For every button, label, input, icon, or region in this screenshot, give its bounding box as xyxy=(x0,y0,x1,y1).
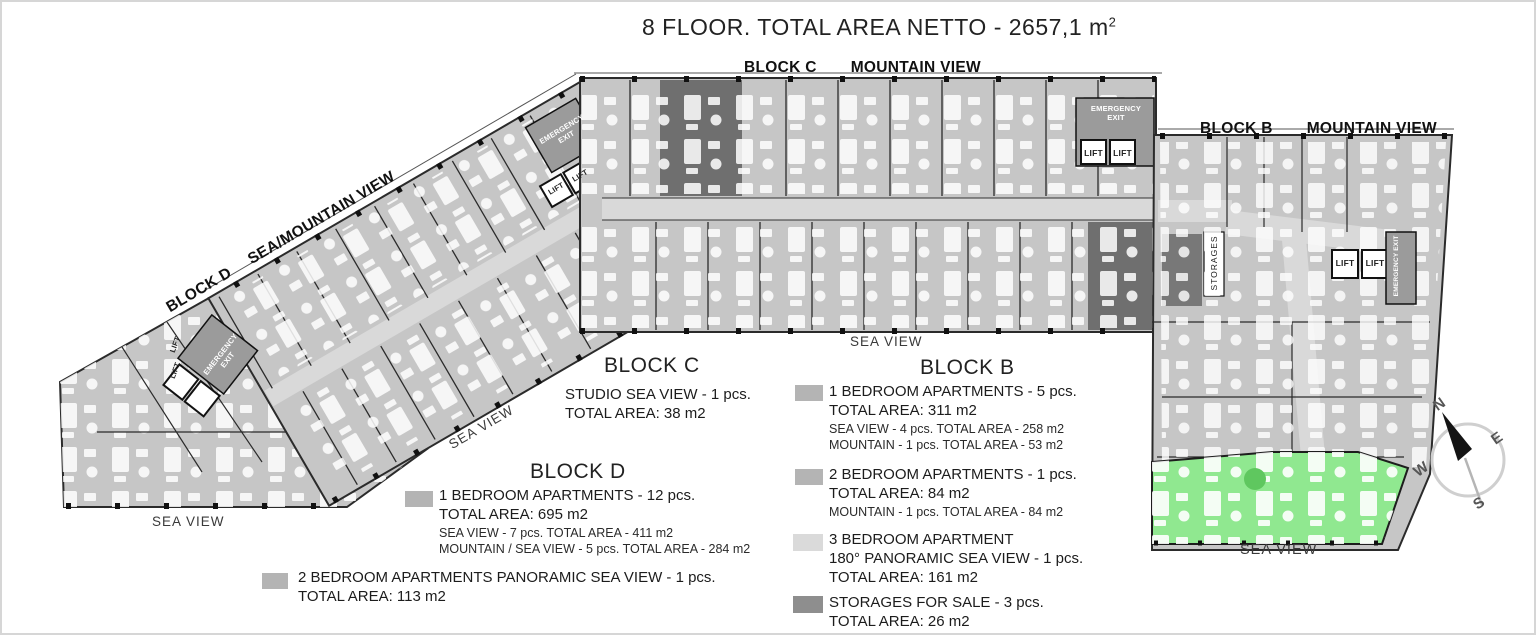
legend-line: 1 BEDROOM APARTMENTS - 12 pcs. xyxy=(439,487,750,506)
block-c-header-label: BLOCK C xyxy=(744,59,817,76)
legend-swatch-storages xyxy=(793,596,823,613)
block-c-shape xyxy=(574,73,1162,332)
block-c-header-view: MOUNTAIN VIEW xyxy=(851,59,981,76)
legend-line: 180° PANORAMIC SEA VIEW - 1 pcs. xyxy=(829,550,1083,569)
legend-subline: SEA VIEW - 7 pcs. TOTAL AREA - 411 m2 xyxy=(439,525,750,541)
legend-subline: SEA VIEW - 4 pcs. TOTAL AREA - 258 m2 xyxy=(829,421,1077,437)
lift-label-block-c-1: LIFT xyxy=(1081,148,1106,158)
block-b-shape xyxy=(1152,129,1454,550)
sea-view-label-block-b: SEA VIEW xyxy=(1240,542,1317,558)
legend-swatch-1bedroom-b xyxy=(795,385,823,401)
legend-line: TOTAL AREA: 161 m2 xyxy=(829,569,1083,588)
legend-block-b-title: BLOCK B xyxy=(920,356,1015,380)
block-b-header: BLOCK BMOUNTAIN VIEW xyxy=(1200,120,1437,138)
sea-view-label-block-c: SEA VIEW xyxy=(850,334,923,349)
legend-block-b-item-1bedroom: 1 BEDROOM APARTMENTS - 5 pcs. TOTAL AREA… xyxy=(829,383,1077,453)
legend-line: 2 BEDROOM APARTMENTS - 1 pcs. xyxy=(829,466,1077,485)
legend-subline: MOUNTAIN - 1 pcs. TOTAL AREA - 84 m2 xyxy=(829,504,1077,520)
legend-block-b-item-2bedroom: 2 BEDROOM APARTMENTS - 1 pcs. TOTAL AREA… xyxy=(829,466,1077,520)
block-b-header-view: MOUNTAIN VIEW xyxy=(1307,120,1437,137)
emergency-exit-label-block-c: EMERGENCY EXIT xyxy=(1085,104,1147,122)
block-c-header: BLOCK CMOUNTAIN VIEW xyxy=(744,59,981,77)
legend-swatch-2bedroom-panoramic xyxy=(262,573,288,589)
legend-line: TOTAL AREA: 84 m2 xyxy=(829,485,1077,504)
legend-swatch-1bedroom-d xyxy=(405,491,433,507)
legend-line: TOTAL AREA: 26 m2 xyxy=(829,613,1044,632)
sea-view-label-block-d-bottom: SEA VIEW xyxy=(152,514,225,529)
legend-subline: MOUNTAIN / SEA VIEW - 5 pcs. TOTAL AREA … xyxy=(439,541,750,557)
page-title: 8 FLOOR. TOTAL AREA NETTO - 2657,1 m2 xyxy=(642,14,1116,41)
floorplan-page: 8 FLOOR. TOTAL AREA NETTO - 2657,1 m2 BL… xyxy=(0,0,1536,635)
legend-line: STORAGES FOR SALE - 3 pcs. xyxy=(829,594,1044,613)
legend-block-b-item-storages: STORAGES FOR SALE - 3 pcs. TOTAL AREA: 2… xyxy=(829,594,1044,632)
legend-block-c-line2: TOTAL AREA: 38 m2 xyxy=(565,405,751,424)
storages-label-block-b: STORAGES xyxy=(1209,223,1219,303)
emergency-exit-label-block-b: EMERGENCY EXIT xyxy=(1393,229,1401,303)
legend-line: TOTAL AREA: 311 m2 xyxy=(829,402,1077,421)
lift-label-block-b-2: LIFT xyxy=(1362,258,1388,268)
legend-block-c-title: BLOCK C xyxy=(604,354,700,378)
legend-block-c-line1: STUDIO SEA VIEW - 1 pcs. xyxy=(565,386,751,405)
legend-swatch-2bedroom-b xyxy=(795,469,823,485)
legend-block-d-item-2bedroom-panoramic: 2 BEDROOM APARTMENTS PANORAMIC SEA VIEW … xyxy=(298,569,716,607)
lift-label-block-c-2: LIFT xyxy=(1110,148,1135,158)
title-superscript: 2 xyxy=(1109,14,1117,29)
legend-block-d-item-1bedroom: 1 BEDROOM APARTMENTS - 12 pcs. TOTAL ARE… xyxy=(439,487,750,557)
legend-line: 2 BEDROOM APARTMENTS PANORAMIC SEA VIEW … xyxy=(298,569,716,588)
legend-subline: MOUNTAIN - 1 pcs. TOTAL AREA - 53 m2 xyxy=(829,437,1077,453)
block-b-header-label: BLOCK B xyxy=(1200,120,1273,137)
legend-line: 1 BEDROOM APARTMENTS - 5 pcs. xyxy=(829,383,1077,402)
floor-plan-drawing xyxy=(2,2,1534,633)
compass-rose xyxy=(1432,412,1504,505)
legend-block-c: STUDIO SEA VIEW - 1 pcs. TOTAL AREA: 38 … xyxy=(565,386,751,424)
legend-line: TOTAL AREA: 113 m2 xyxy=(298,588,716,607)
legend-block-d-title: BLOCK D xyxy=(530,460,626,484)
legend-block-b-item-3bedroom: 3 BEDROOM APARTMENT 180° PANORAMIC SEA V… xyxy=(829,531,1083,588)
lift-label-block-b-1: LIFT xyxy=(1332,258,1358,268)
legend-line: TOTAL AREA: 695 m2 xyxy=(439,506,750,525)
legend-line: 3 BEDROOM APARTMENT xyxy=(829,531,1083,550)
legend-swatch-3bedroom xyxy=(793,534,823,551)
